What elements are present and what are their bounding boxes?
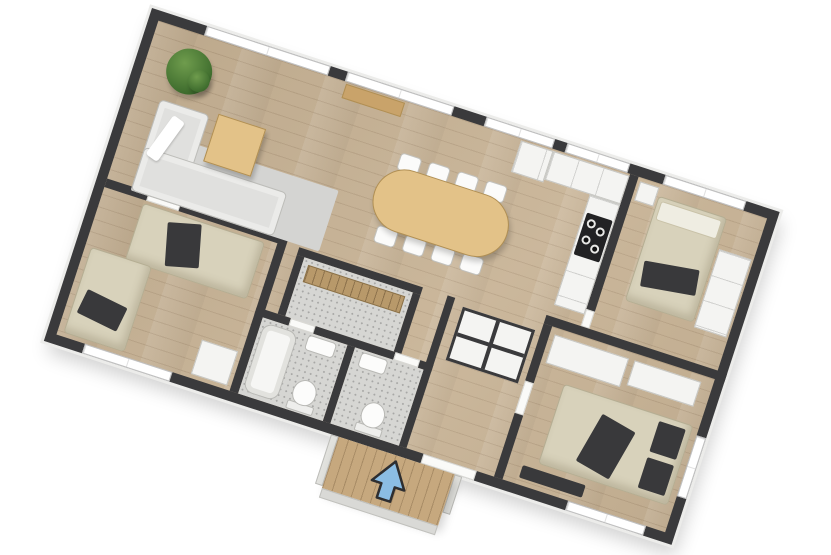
floor-plan-canvas xyxy=(0,0,831,555)
clothes-pile-1 xyxy=(165,222,202,268)
rotated-floor-plan xyxy=(22,8,779,555)
